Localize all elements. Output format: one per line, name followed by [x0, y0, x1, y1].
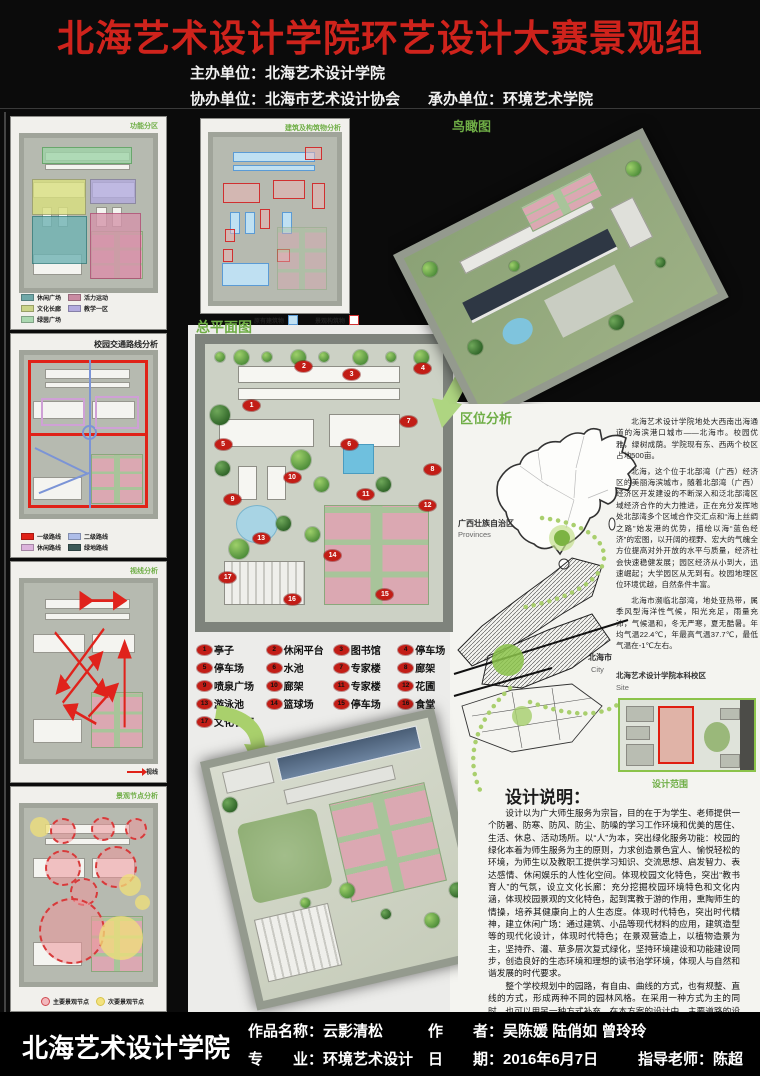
building-shape: [626, 706, 654, 722]
legend-label: 次要景观节点: [108, 997, 144, 1006]
legend-item: 二级路线: [68, 532, 108, 541]
author-field: 作 者：吴陈媛 陆俏如 曾玲玲: [428, 1020, 646, 1041]
field-value: 环境艺术设计: [323, 1051, 413, 1068]
undertaker-line: 承办单位：环境艺术学院: [428, 88, 593, 109]
legend-item: 教学一区: [68, 304, 108, 313]
panel-landscape-nodes: 景观节点分析 主要景观节点 次要景观节点: [10, 786, 167, 1012]
building-shape: [238, 366, 400, 383]
legend-label: 休闲路线: [37, 543, 61, 552]
legend-item: 休闲广场: [21, 293, 61, 302]
existing-building: [245, 212, 255, 233]
plan-marker: 3: [343, 369, 360, 380]
zone-yellow: [32, 179, 86, 215]
left-edge-strip: [4, 112, 6, 1012]
header-divider: [0, 108, 760, 109]
field-shape: [704, 722, 730, 752]
existing-building: [222, 263, 269, 286]
legend-swatch: [21, 544, 34, 551]
legend-item: 休闲路线: [21, 543, 61, 552]
minor-node-circle: [119, 874, 141, 896]
landscape-structure: [273, 180, 305, 200]
legend-swatch: [21, 305, 34, 312]
legend-swatch: [68, 544, 81, 551]
design-description-title: 设计说明：: [505, 783, 590, 808]
building-shape: [45, 164, 130, 170]
aerial-bottom-wrapper: [186, 660, 458, 1012]
legend-label: 亭子: [214, 642, 234, 657]
tree-icon: [319, 352, 329, 362]
zone-green: [42, 147, 132, 164]
legend-swatch: [68, 294, 81, 301]
legend-label: 休闲平台: [284, 642, 324, 657]
landscape-structure: [305, 147, 322, 160]
legend-label: 绿茵广场: [37, 315, 61, 324]
tree-icon: [221, 796, 239, 814]
legend-label: 文化长廊: [37, 304, 61, 313]
legend-label: 活力运动: [84, 293, 108, 302]
courts-shape: [277, 227, 327, 289]
location-paragraphs: 北海艺术设计学院地处大西南出海通道的海滨港口城市——北海市。校园优雅，绿树成荫。…: [616, 416, 758, 656]
competition-poster: 北海艺术设计学院环艺设计大赛景观组 主办单位：北海艺术设计学院 协办单位：北海市…: [0, 0, 760, 1076]
pond-shape: [498, 313, 537, 349]
marker-icon: 2: [267, 645, 282, 655]
tree-icon: [215, 352, 225, 362]
nodes-legend: 主要景观节点 次要景观节点: [41, 996, 160, 1007]
legend-item: 原有建筑物: [254, 315, 308, 325]
campus-aerial-bottom-image: [200, 708, 458, 1010]
legend-label: 二级路线: [84, 532, 108, 541]
tree-icon: [448, 881, 458, 899]
building-shape: [238, 388, 400, 399]
zone-pink: [90, 213, 142, 279]
field-value: 2016年6月7日: [503, 1051, 598, 1068]
city-label: 北海市: [588, 652, 612, 663]
location-paragraph: 北海艺术设计学院地处大西南出海通道的海滨港口城市——北海市。校园优雅，绿树成荫。…: [616, 416, 758, 462]
panel-title: 景观节点分析: [116, 791, 158, 801]
legend-label: 绿地路线: [84, 543, 108, 552]
plan-marker: 15: [376, 589, 393, 600]
design-scope-label: 设计范围: [652, 777, 688, 790]
building-shape: [720, 754, 740, 768]
province-sub-label: Provinces: [458, 530, 491, 539]
cohost-line: 协办单位：北海市艺术设计协会: [190, 88, 400, 109]
zoning-plan-image: [19, 133, 158, 293]
building-shape: [720, 708, 740, 720]
design-scope-outline: [658, 706, 694, 764]
tree-icon: [291, 450, 311, 470]
plan-marker: 10: [284, 472, 301, 483]
tree-icon: [380, 908, 392, 920]
plan-marker: 9: [224, 494, 241, 505]
building-shape: [219, 419, 314, 447]
tree-icon: [276, 516, 291, 531]
legend-swatch: [349, 315, 359, 325]
legend-swatch: [68, 533, 81, 540]
panel-title: 视线分析: [130, 566, 158, 576]
legend-label: 视线: [146, 767, 158, 776]
building-shape: [329, 414, 400, 447]
tree-icon: [314, 477, 329, 492]
tree-icon: [623, 159, 643, 179]
legend-item: 次要景观节点: [96, 997, 144, 1006]
major-field: 专 业：环境艺术设计: [248, 1048, 413, 1069]
aerial-top-wrapper: [388, 112, 760, 404]
plan-marker: 7: [400, 416, 417, 427]
legend-item: 绿地路线: [68, 543, 108, 552]
legend-label: 休闲广场: [37, 293, 61, 302]
field-label: 作 者：: [428, 1023, 503, 1040]
landscape-structure: [223, 183, 260, 203]
leisure-route-loop: [95, 396, 139, 429]
advisor-field: 指导老师：陈超: [638, 1048, 743, 1069]
province-label: 广西壮族自治区: [458, 518, 514, 529]
field-value: 吴陈媛 陆俏如 曾玲玲: [503, 1023, 646, 1040]
tree-icon: [215, 461, 230, 476]
marker-icon: 4: [398, 645, 413, 655]
building-shape: [222, 761, 275, 793]
legend-item: 文化长廊: [21, 304, 61, 313]
tree-icon: [262, 352, 272, 362]
tree-icon: [210, 405, 230, 425]
legend-swatch: [21, 316, 34, 323]
legend-item: 一级路线: [21, 532, 61, 541]
panel-title: 功能分区: [130, 121, 158, 131]
sight-arrows-graphic: [24, 583, 153, 759]
site-sub-label: Site: [616, 683, 629, 692]
panel-buildings-structures: 建筑及构筑物分析: [200, 118, 350, 314]
landscape-structure: [312, 183, 324, 209]
tree-icon: [419, 259, 439, 279]
plan-marker: 6: [341, 439, 358, 450]
legend-swatch: [68, 305, 81, 312]
aerial-campus-ground: [404, 139, 718, 404]
sight-plan-image: [19, 578, 158, 764]
field-label: 指导老师：: [638, 1051, 713, 1068]
date-field: 日 期：2016年6月7日: [428, 1048, 598, 1069]
building-shape: [276, 725, 421, 781]
landscape-structure: [225, 229, 235, 242]
tree-icon: [234, 350, 249, 365]
field-label: 专 业：: [248, 1051, 323, 1068]
minor-node-circle: [99, 916, 143, 960]
tree-icon: [607, 312, 627, 332]
structures-plan-image: [208, 132, 342, 306]
tree-icon: [423, 912, 441, 930]
zone-purple: [90, 179, 136, 205]
work-name-field: 作品名称：云影清松: [248, 1020, 383, 1041]
traffic-legend: 一级路线 二级路线 休闲路线 绿地路线: [21, 531, 160, 553]
existing-building: [233, 152, 315, 162]
tree-icon: [507, 260, 520, 273]
legend-label: 原有建筑物: [254, 316, 284, 325]
panel-traffic-routes: 校园交通路线分析 一级路线 二级路线 休闲路线 绿地路线: [10, 333, 167, 558]
legend-swatch: [96, 997, 105, 1006]
sight-legend: 视线: [127, 767, 158, 776]
legend-item: 主要景观节点: [41, 997, 89, 1006]
field-label: 日 期：: [428, 1051, 503, 1068]
legend-label: 景观构筑物: [315, 316, 345, 325]
building-shape: [609, 196, 653, 248]
road-shape: [740, 700, 754, 770]
legend-item: 4停车场: [398, 642, 455, 657]
arrow-icon: [127, 771, 143, 773]
traffic-plan-image: [19, 350, 158, 519]
plan-marker: 5: [215, 439, 232, 450]
building-shape: [254, 903, 343, 983]
aerial-campus-ground: [210, 718, 458, 1001]
legend-label: 一级路线: [37, 532, 61, 541]
legend-item: 活力运动: [68, 293, 108, 302]
poster-title: 北海艺术设计学院环艺设计大赛景观组: [0, 8, 760, 62]
plan-marker: 13: [253, 533, 270, 544]
field-value: 云影清松: [323, 1023, 383, 1040]
landscape-structure: [260, 209, 270, 229]
plan-marker: 1: [243, 400, 260, 411]
legend-swatch: [21, 533, 34, 540]
legend-item: 3图书馆: [334, 642, 399, 657]
plan-marker: 12: [419, 500, 436, 511]
site-label: 北海艺术设计学院本科校区: [616, 670, 706, 681]
panel-title: 校园交通路线分析: [94, 339, 158, 350]
tree-icon: [653, 256, 666, 269]
lawn-shape: [237, 807, 334, 904]
landscape-structure: [223, 249, 233, 262]
tree-icon: [353, 350, 368, 365]
description-paragraph: 设计以为广大师生服务为宗旨，目的在于为学生、老师提供一个防暑、防寒、防风、防尘、…: [488, 807, 740, 980]
legend-swatch: [41, 997, 50, 1006]
plan-marker: 16: [284, 594, 301, 605]
legend-label: 停车场: [415, 642, 445, 657]
leisure-route-loop: [41, 398, 85, 426]
location-paragraph: 北海，这个位于北部湾（广西）经济区的美丽海滨城市，随着北部湾（广西）经济区开发建…: [616, 466, 758, 591]
building-shape: [626, 726, 650, 740]
school-name: 北海艺术设计学院: [22, 1028, 230, 1065]
footer-bar: 北海艺术设计学院 作品名称：云影清松 专 业：环境艺术设计 作 者：吴陈媛 陆俏…: [0, 1012, 760, 1076]
legend-swatch: [288, 315, 298, 325]
tree-icon: [465, 338, 485, 358]
host-line: 主办单位：北海艺术设计学院: [190, 62, 385, 83]
plan-marker: 14: [324, 550, 341, 561]
building-shape: [238, 466, 257, 499]
tree-icon: [305, 527, 320, 542]
site-plan-image: [618, 698, 756, 772]
location-paragraph: 北海市濒临北部湾，地处亚热带，属季风型海洋性气候，阳光充足，雨量充沛，气候温和，…: [616, 595, 758, 652]
marker-icon: 1: [197, 645, 212, 655]
existing-building: [233, 165, 315, 172]
zoning-legend: 休闲广场 活力运动 文化长廊 教学一区 绿茵广场: [21, 292, 160, 325]
field-value: 陈超: [713, 1051, 743, 1068]
major-node-circle: [91, 817, 115, 841]
plan-legend: 原有建筑物 景观构筑物: [254, 314, 376, 326]
legend-item: 2休闲平台: [267, 642, 334, 657]
building-shape: [267, 466, 286, 499]
campus-aerial-top-image: [393, 128, 729, 404]
panel-functional-zoning: 功能分区 休闲广场 活力运动 文化长廊 教学一区 绿茵广场: [10, 116, 167, 330]
legend-label: 图书馆: [351, 642, 381, 657]
legend-label: 主要景观节点: [53, 997, 89, 1006]
tree-icon: [229, 539, 249, 559]
legend-item: 景观构筑物: [315, 315, 369, 325]
minor-node-circle: [135, 895, 150, 910]
legend-swatch: [21, 294, 34, 301]
nodes-plan-image: [19, 803, 158, 987]
legend-label: 教学一区: [84, 304, 108, 313]
major-node-circle: [125, 818, 147, 840]
plan-marker: 8: [424, 464, 441, 475]
field-label: 作品名称：: [248, 1023, 323, 1040]
plan-marker: 11: [357, 489, 374, 500]
tree-icon: [376, 477, 391, 492]
building-shape: [626, 744, 654, 766]
legend-item: 1亭子: [197, 642, 267, 657]
city-sub-label: City: [591, 665, 604, 674]
zone-teal: [32, 216, 87, 264]
plan-marker: 2: [295, 361, 312, 372]
legend-item: 绿茵广场: [21, 315, 61, 324]
marker-icon: 3: [334, 645, 349, 655]
panel-sight-lines: 视线分析 视线: [10, 561, 167, 783]
